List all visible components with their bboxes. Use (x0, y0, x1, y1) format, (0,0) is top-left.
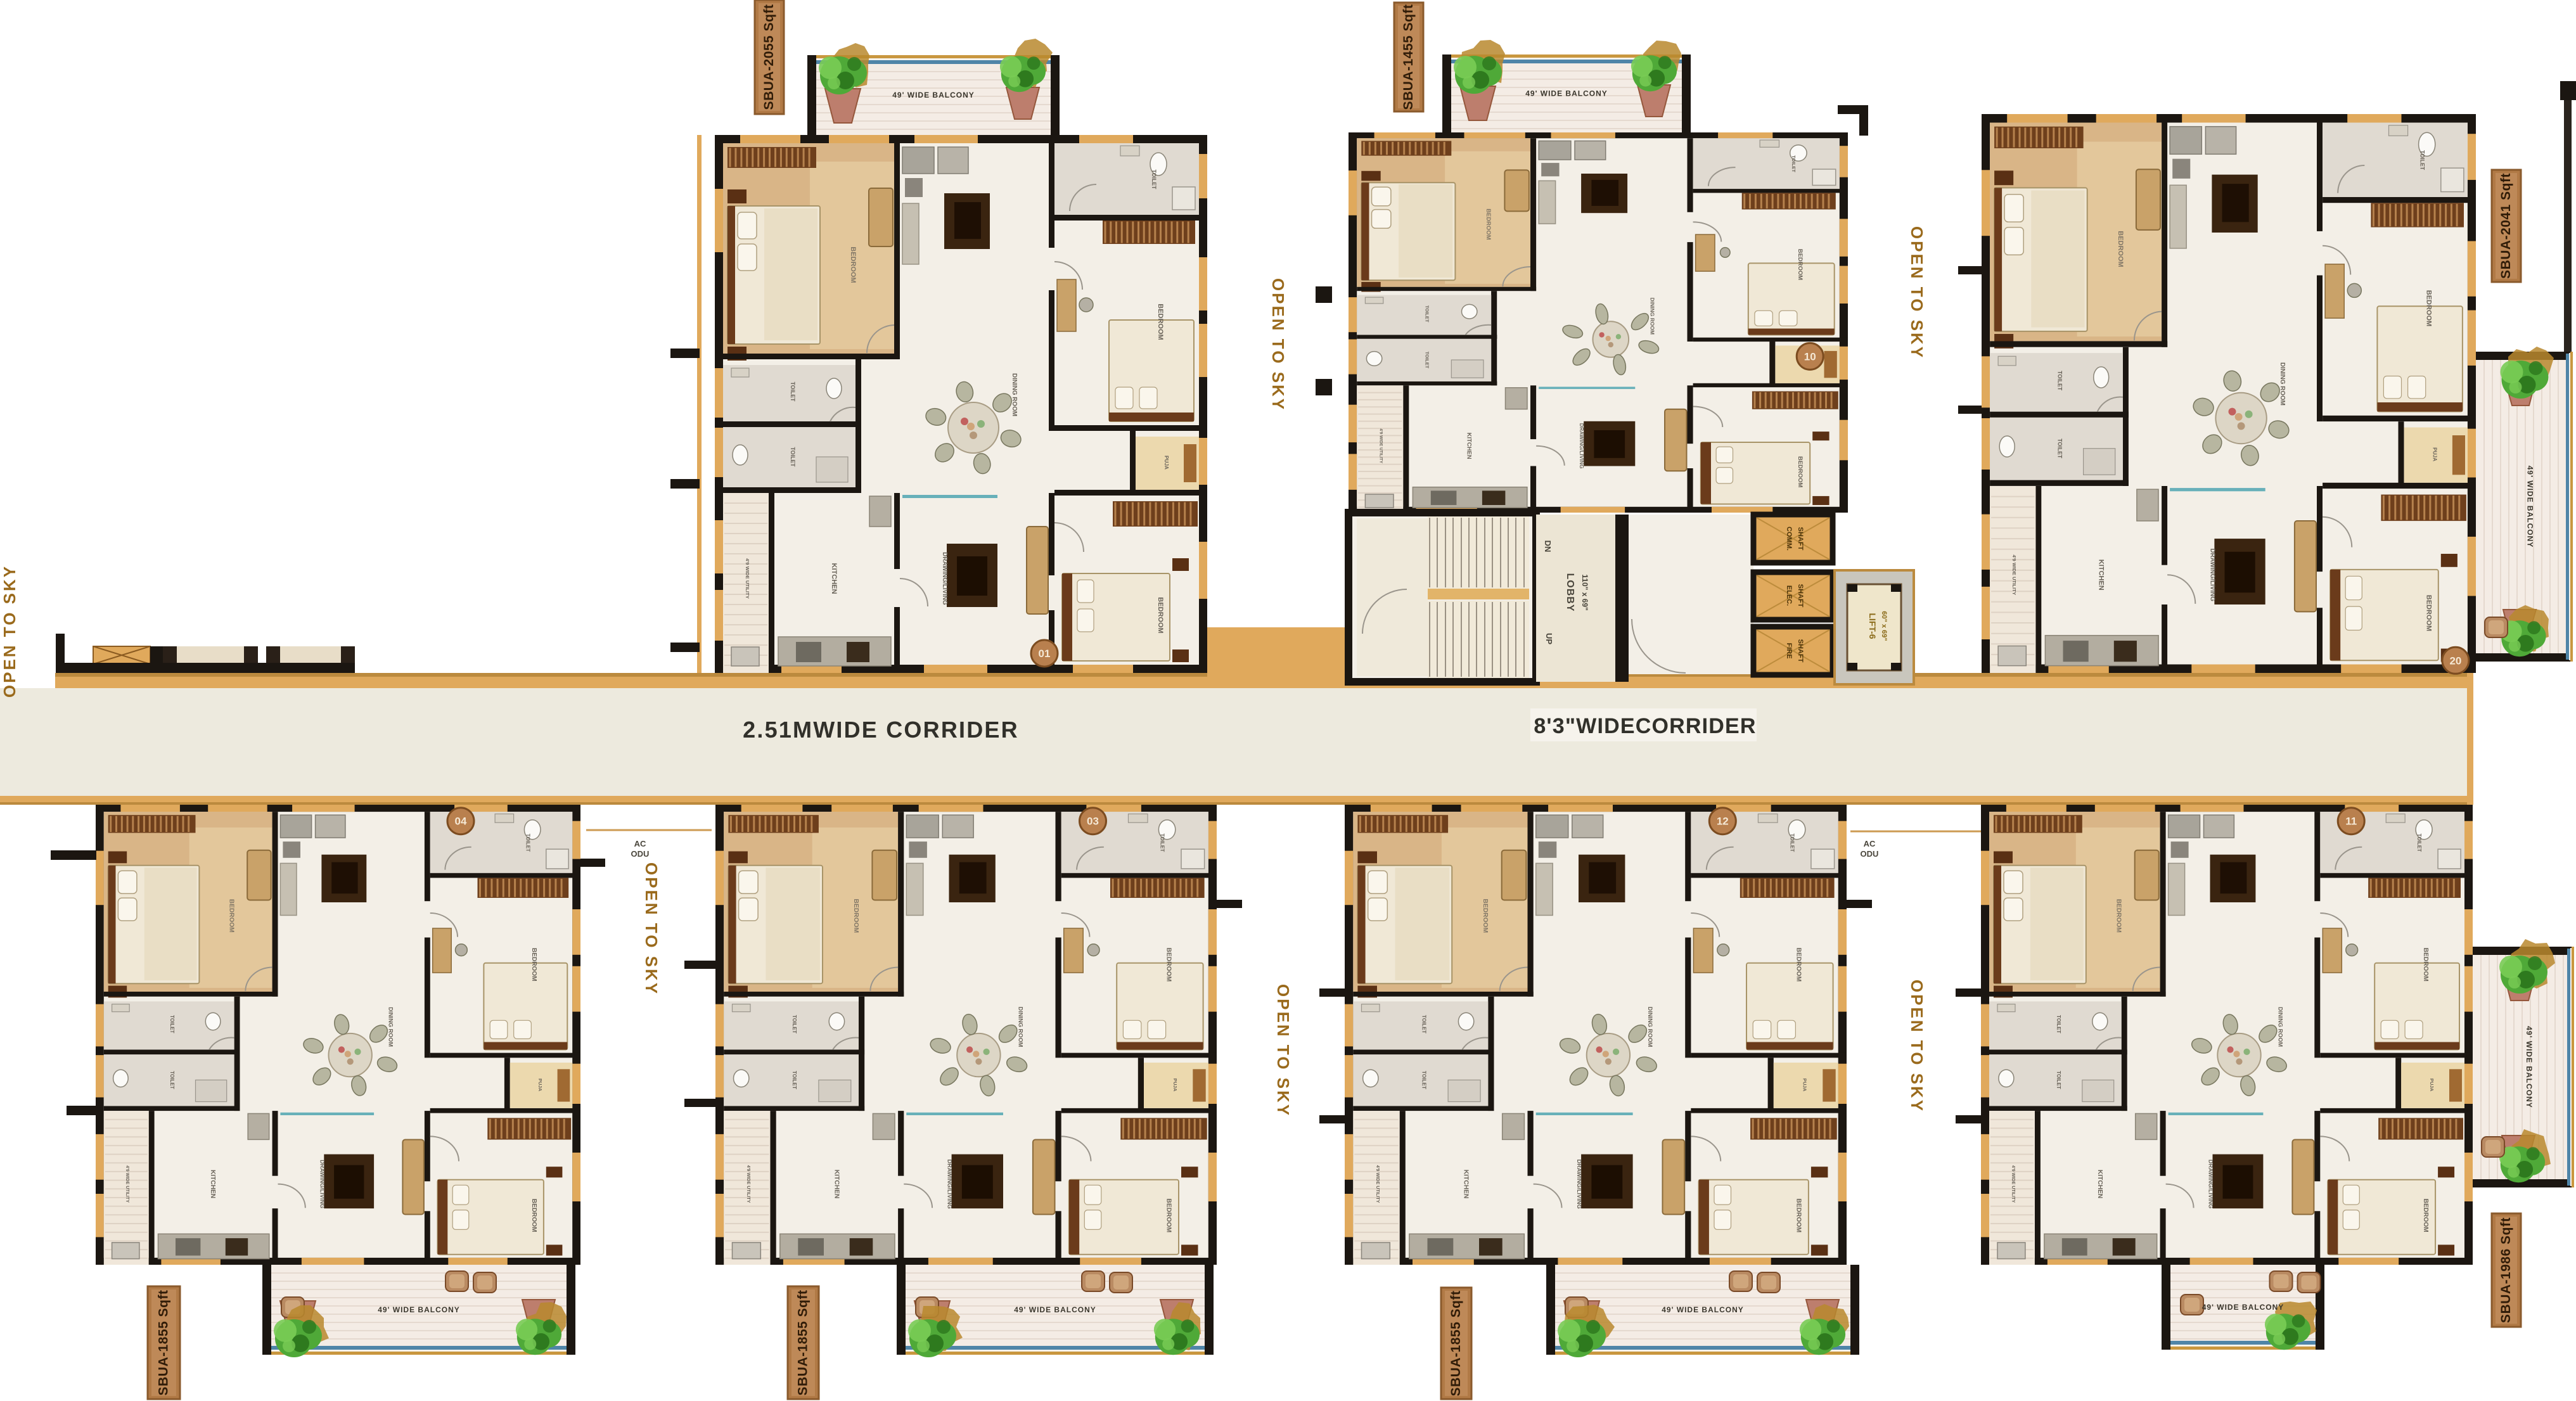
svg-text:KITCHEN: KITCHEN (830, 563, 838, 594)
svg-text:TOILET: TOILET (1425, 305, 1430, 323)
svg-text:TOILET: TOILET (1791, 155, 1797, 172)
svg-text:BEDROOM: BEDROOM (1795, 1198, 1802, 1232)
svg-text:KITCHEN: KITCHEN (2098, 560, 2105, 591)
svg-text:SHAFT: SHAFT (1797, 639, 1804, 663)
svg-text:BEDROOM: BEDROOM (2425, 290, 2433, 326)
svg-text:SBUA-1986 Sqft: SBUA-1986 Sqft (2499, 1217, 2513, 1323)
svg-text:FIRE: FIRE (1785, 643, 1793, 658)
svg-text:49' WIDE BALCONY: 49' WIDE BALCONY (2202, 1303, 2284, 1312)
svg-text:BEDROOM: BEDROOM (1165, 947, 1172, 982)
svg-text:DINING ROOM: DINING ROOM (1011, 373, 1018, 416)
svg-text:SBUA-1855 Sqft: SBUA-1855 Sqft (1449, 1291, 1463, 1397)
svg-text:60" x 69": 60" x 69" (1880, 611, 1888, 641)
svg-text:UP: UP (1544, 633, 1554, 644)
svg-text:OPEN TO SKY: OPEN TO SKY (1907, 980, 1926, 1113)
svg-text:2.51MWIDE CORRIDER: 2.51MWIDE CORRIDER (743, 717, 1019, 743)
svg-text:BEDROOM: BEDROOM (1485, 208, 1492, 240)
svg-text:DINING ROOM: DINING ROOM (1018, 1007, 1024, 1047)
svg-text:DRAWING/LIVING: DRAWING/LIVING (2208, 549, 2215, 602)
svg-text:4'9 WIDE UTILITY: 4'9 WIDE UTILITY (746, 1165, 752, 1203)
svg-text:BEDROOM: BEDROOM (530, 948, 537, 982)
svg-text:49' WIDE BALCONY: 49' WIDE BALCONY (892, 91, 975, 99)
svg-text:DINING ROOM: DINING ROOM (1647, 1007, 1653, 1047)
svg-text:BEDROOM: BEDROOM (1157, 597, 1164, 633)
svg-text:01: 01 (1039, 648, 1051, 660)
svg-text:LIFT-6: LIFT-6 (1868, 613, 1878, 639)
svg-text:BEDROOM: BEDROOM (2115, 899, 2122, 933)
svg-text:BEDROOM: BEDROOM (1797, 249, 1804, 280)
svg-text:PUJA: PUJA (2429, 1078, 2435, 1092)
svg-text:BEDROOM: BEDROOM (228, 899, 235, 933)
svg-text:8'3"WIDECORRIDER: 8'3"WIDECORRIDER (1534, 714, 1756, 738)
svg-text:BEDROOM: BEDROOM (1795, 947, 1802, 982)
svg-text:KITCHEN: KITCHEN (833, 1170, 840, 1199)
svg-text:SBUA-1855 Sqft: SBUA-1855 Sqft (796, 1290, 811, 1396)
svg-text:OPEN TO SKY: OPEN TO SKY (642, 862, 661, 995)
svg-text:TOILET: TOILET (2057, 371, 2063, 391)
svg-text:BEDROOM: BEDROOM (2422, 1199, 2429, 1232)
svg-text:20: 20 (2449, 655, 2461, 667)
svg-text:TOILET: TOILET (790, 447, 796, 467)
svg-text:BEDROOM: BEDROOM (2425, 595, 2433, 631)
svg-text:LOBBY: LOBBY (1565, 573, 1575, 612)
svg-text:SBUA-2055 Sqft: SBUA-2055 Sqft (762, 4, 776, 110)
svg-text:49' WIDE BALCONY: 49' WIDE BALCONY (2525, 1026, 2534, 1108)
svg-text:DRAWING/LIVING: DRAWING/LIVING (941, 552, 948, 605)
svg-text:SBUA-1855 Sqft: SBUA-1855 Sqft (157, 1290, 171, 1396)
svg-text:DINING ROOM: DINING ROOM (388, 1007, 394, 1047)
svg-text:TOILET: TOILET (169, 1071, 175, 1089)
svg-text:TOILET: TOILET (1421, 1071, 1426, 1089)
svg-text:AC: AC (634, 839, 646, 848)
svg-text:TOILET: TOILET (1159, 833, 1165, 852)
svg-text:KITCHEN: KITCHEN (209, 1170, 216, 1198)
svg-text:TOILET: TOILET (2056, 1071, 2061, 1089)
svg-text:DINING ROOM: DINING ROOM (2279, 362, 2286, 406)
svg-text:TOILET: TOILET (790, 381, 796, 402)
svg-text:PUJA: PUJA (537, 1078, 543, 1092)
svg-text:BEDROOM: BEDROOM (530, 1199, 537, 1232)
svg-text:49' WIDE BALCONY: 49' WIDE BALCONY (1014, 1305, 1096, 1314)
svg-text:DRAWING/LIVING: DRAWING/LIVING (2208, 1160, 2214, 1208)
svg-text:PUJA: PUJA (1163, 456, 1169, 470)
svg-text:SBUA-1455 Sqft: SBUA-1455 Sqft (1401, 4, 1416, 110)
svg-text:BEDROOM: BEDROOM (2117, 231, 2124, 267)
svg-text:PUJA: PUJA (1172, 1078, 1178, 1092)
svg-text:KITCHEN: KITCHEN (1463, 1170, 1470, 1199)
svg-text:KITCHEN: KITCHEN (2096, 1170, 2103, 1198)
svg-text:10: 10 (1804, 350, 1816, 362)
svg-text:BEDROOM: BEDROOM (1157, 304, 1164, 340)
svg-text:ODU: ODU (1861, 849, 1879, 859)
svg-text:49' WIDE BALCONY: 49' WIDE BALCONY (2526, 466, 2535, 548)
svg-text:BEDROOM: BEDROOM (852, 899, 859, 933)
svg-text:DINING ROOM: DINING ROOM (2277, 1007, 2283, 1047)
svg-text:4'9 WIDE UTILITY: 4'9 WIDE UTILITY (2011, 554, 2017, 595)
svg-text:PUJA: PUJA (1802, 1078, 1808, 1092)
svg-text:04: 04 (455, 816, 467, 828)
svg-text:110" x 69": 110" x 69" (1580, 574, 1589, 610)
svg-text:ODU: ODU (631, 849, 650, 859)
svg-text:SHAFT: SHAFT (1797, 527, 1804, 551)
svg-text:DRAWING/LIVING: DRAWING/LIVING (1579, 423, 1585, 469)
svg-text:TOILET: TOILET (169, 1015, 175, 1033)
svg-text:TOILET: TOILET (791, 1071, 797, 1089)
svg-text:KITCHEN: KITCHEN (1466, 433, 1473, 459)
svg-text:TOILET: TOILET (525, 834, 530, 852)
svg-text:TOILET: TOILET (2416, 834, 2422, 852)
svg-text:TOILET: TOILET (1421, 1015, 1426, 1033)
svg-text:TOILET: TOILET (1789, 833, 1795, 852)
svg-text:COMM.: COMM. (1785, 527, 1793, 551)
svg-text:DRAWING/LIVING: DRAWING/LIVING (947, 1159, 953, 1208)
svg-text:4'9 WIDE UTILITY: 4'9 WIDE UTILITY (2011, 1165, 2016, 1203)
svg-text:49' WIDE BALCONY: 49' WIDE BALCONY (1525, 89, 1608, 98)
svg-text:TOILET: TOILET (1425, 352, 1430, 369)
svg-text:4'9 WIDE UTILITY: 4'9 WIDE UTILITY (1379, 428, 1383, 463)
svg-text:DRAWING/LIVING: DRAWING/LIVING (319, 1160, 325, 1208)
svg-text:OPEN TO SKY: OPEN TO SKY (1274, 984, 1293, 1117)
svg-text:03: 03 (1087, 816, 1099, 828)
svg-text:4'9 WIDE UTILITY: 4'9 WIDE UTILITY (1375, 1165, 1381, 1203)
svg-text:PUJA: PUJA (2432, 447, 2438, 461)
svg-text:AC: AC (1864, 839, 1876, 848)
svg-text:DN: DN (1543, 541, 1553, 553)
svg-text:4'9 WIDE UTILITY: 4'9 WIDE UTILITY (745, 558, 750, 599)
svg-text:SBUA-2041 Sqft: SBUA-2041 Sqft (2499, 173, 2513, 279)
svg-text:OPEN TO SKY: OPEN TO SKY (1269, 278, 1288, 411)
svg-text:BEDROOM: BEDROOM (1482, 899, 1489, 933)
svg-text:DINING ROOM: DINING ROOM (1650, 298, 1656, 335)
svg-text:12: 12 (1717, 816, 1729, 828)
svg-text:TOILET: TOILET (2057, 438, 2063, 459)
svg-text:OPEN TO SKY: OPEN TO SKY (1907, 226, 1926, 359)
svg-text:OPEN TO SKY: OPEN TO SKY (0, 565, 19, 698)
svg-text:49' WIDE BALCONY: 49' WIDE BALCONY (1662, 1305, 1744, 1314)
svg-text:49' WIDE BALCONY: 49' WIDE BALCONY (378, 1305, 460, 1314)
svg-text:BEDROOM: BEDROOM (1797, 456, 1804, 487)
svg-text:TOILET: TOILET (2419, 150, 2426, 170)
svg-text:DRAWING/LIVING: DRAWING/LIVING (1576, 1159, 1582, 1208)
svg-text:BEDROOM: BEDROOM (1165, 1198, 1172, 1232)
svg-text:BEDROOM: BEDROOM (849, 246, 857, 283)
svg-text:4'9 WIDE UTILITY: 4'9 WIDE UTILITY (125, 1165, 130, 1203)
svg-text:TOILET: TOILET (791, 1015, 797, 1033)
svg-text:ELEC.: ELEC. (1785, 585, 1793, 606)
svg-text:BEDROOM: BEDROOM (2422, 948, 2429, 982)
svg-text:SHAFT: SHAFT (1797, 584, 1804, 608)
svg-text:11: 11 (2345, 816, 2357, 828)
svg-text:TOILET: TOILET (2056, 1015, 2061, 1033)
svg-text:TOILET: TOILET (1151, 169, 1157, 189)
